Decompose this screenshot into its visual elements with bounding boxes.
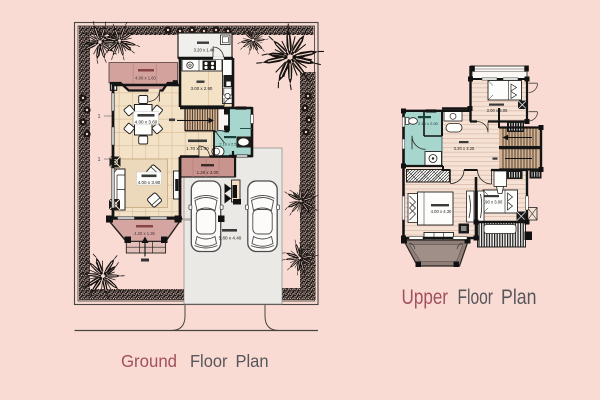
svg-text:1: 1 [98, 114, 101, 120]
svg-text:2.10 x 2.50: 2.10 x 2.50 [219, 142, 239, 147]
svg-text:4.00 x 1.60: 4.00 x 1.60 [135, 76, 156, 81]
svg-text:Plan: Plan [501, 286, 537, 309]
svg-text:5.80 x 4.40: 5.80 x 4.40 [219, 236, 242, 241]
svg-text:Floor: Floor [458, 286, 494, 309]
svg-text:4.00 x 4.30: 4.00 x 4.30 [431, 209, 452, 214]
svg-text:1: 1 [98, 157, 101, 163]
svg-text:Upper: Upper [402, 286, 449, 309]
svg-text:3.00 x 3.00: 3.00 x 3.00 [487, 108, 508, 113]
svg-text:4.00 x 3.90: 4.00 x 3.90 [138, 180, 161, 185]
svg-text:Ground: Ground [121, 351, 177, 371]
svg-text:3.20 x 1.40: 3.20 x 1.40 [194, 48, 215, 53]
svg-text:2.90 x 3.00: 2.90 x 3.00 [482, 200, 503, 205]
svg-text:3.20 x 3.25: 3.20 x 3.25 [454, 146, 475, 151]
svg-text:1.20 x 3.00: 1.20 x 3.00 [197, 170, 219, 175]
svg-text:3.00 x 2.90: 3.00 x 2.90 [191, 86, 213, 91]
svg-text:Floor: Floor [190, 351, 228, 371]
svg-text:2.10 x 2.00: 2.10 x 2.00 [418, 121, 439, 126]
svg-text:Plan: Plan [236, 351, 269, 371]
svg-text:4.20 x 1.35: 4.20 x 1.35 [134, 231, 155, 236]
svg-text:4.00 x 3.60: 4.00 x 3.60 [135, 120, 158, 125]
